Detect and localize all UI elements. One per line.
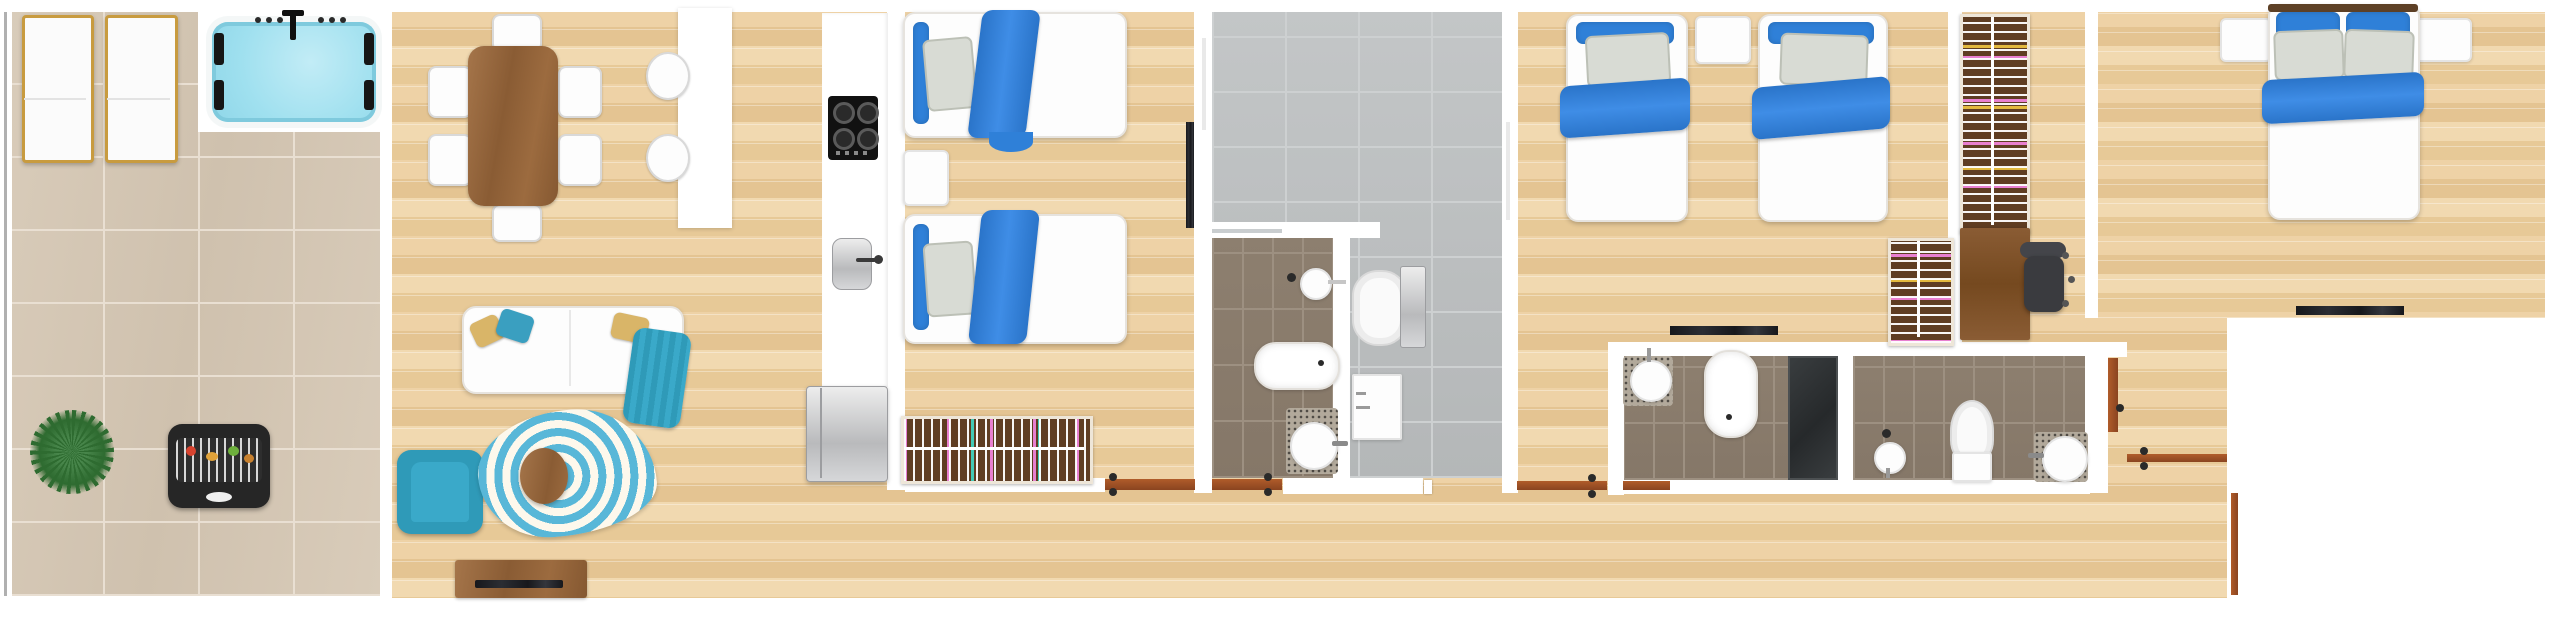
door-hinge [2140, 447, 2148, 455]
hot-tub-jet [266, 17, 272, 23]
door-hinge [1588, 490, 1596, 498]
basin-handle [2028, 453, 2044, 458]
wall-bath-bedroom2 [1502, 5, 1518, 493]
potted-plant [30, 410, 114, 494]
sun-lounger [105, 15, 178, 163]
dining-chair [428, 134, 472, 186]
lounger-seam [107, 98, 170, 100]
bed-single [903, 12, 1127, 138]
terrace-railing [4, 12, 7, 596]
faucet-mixer [1882, 429, 1891, 438]
basin-handle [1332, 441, 1348, 446]
tub-faucet [1318, 360, 1324, 366]
vanity-faucet [1356, 392, 1366, 395]
wardrobe [1888, 238, 1954, 346]
cooktop-knobs [836, 151, 872, 155]
dining-chair [558, 134, 602, 186]
door-threshold [2108, 358, 2118, 432]
double-bed [2268, 4, 2420, 220]
wall-basin [1874, 442, 1906, 474]
wardrobe-rail [1917, 241, 1920, 337]
cooktop-burner [857, 128, 879, 150]
door-stop [1424, 480, 1432, 494]
floor-plan [0, 0, 2560, 622]
hot-tub-headrest [364, 33, 374, 65]
towel-rail [1506, 122, 1510, 220]
door-hinge [1109, 473, 1117, 481]
tub-faucet [1726, 414, 1732, 420]
bed-blanket-fold [989, 132, 1033, 152]
bbq-food [228, 446, 239, 456]
bed-pillow [2273, 29, 2345, 81]
nightstand [903, 150, 949, 206]
basin-faucet-arm [1328, 280, 1346, 284]
nightstand [2220, 18, 2272, 62]
wall-tv [1186, 122, 1194, 228]
ensuite-right-wall [2085, 356, 2108, 493]
fridge-door-split [820, 388, 822, 478]
hot-tub-headrest [214, 80, 224, 110]
bathtub [1704, 350, 1758, 438]
dining-chair [492, 204, 542, 242]
basin-faucet [1647, 348, 1651, 362]
hot-tub-jet [329, 17, 335, 23]
bathtub [1254, 342, 1340, 390]
wall-bedroom2-bottom [1608, 342, 2090, 356]
bbq-shelf [206, 492, 232, 502]
sofa-seam [569, 310, 571, 386]
outer-wall-bottom [0, 598, 2560, 622]
door-hinge [1588, 474, 1596, 482]
chair-caster [2068, 276, 2075, 283]
hot-tub-jet [318, 17, 324, 23]
glass-screen [1212, 229, 1282, 233]
bed-single [1758, 14, 1888, 222]
cooktop-burner [833, 128, 855, 150]
clothes-rack [901, 416, 1093, 484]
bar-stool [646, 52, 690, 100]
ensuite-bottom-wall [1608, 480, 2090, 494]
bbq-food [206, 452, 218, 461]
cooktop-burner [833, 102, 855, 124]
ensuite-left-wall [1608, 355, 1624, 495]
door-threshold [1212, 479, 1282, 490]
door-hinge [1109, 488, 1117, 496]
lounger-seam [24, 98, 86, 100]
wall-tv [2296, 306, 2404, 315]
bed-blanket [1752, 76, 1890, 140]
sun-lounger [22, 15, 94, 163]
side-door-threshold [2231, 493, 2238, 595]
refrigerator [806, 386, 888, 482]
door-hinge [1264, 473, 1272, 481]
dining-chair [558, 66, 602, 118]
headboard [2268, 4, 2418, 12]
vanity-faucet [1356, 406, 1370, 409]
toilet-tank [1400, 266, 1426, 348]
bed-single [903, 214, 1127, 344]
kitchen-sink [832, 238, 872, 290]
door-hinge [2140, 462, 2148, 470]
wardrobe-rail [1991, 17, 1994, 225]
shower [1788, 356, 1838, 480]
bed-blanket [968, 210, 1040, 344]
hot-tub-faucet-stem [290, 12, 296, 40]
door-threshold [1623, 481, 1670, 490]
office-chair [2024, 256, 2064, 312]
outside-bottom-right [2232, 318, 2560, 622]
bbq-food [186, 446, 196, 456]
bbq-food [244, 454, 254, 463]
entry-door-threshold [2127, 454, 2227, 462]
cooktop-burner [857, 102, 879, 124]
dining-table [468, 46, 558, 206]
sink-faucet-head [874, 255, 883, 264]
desk [1960, 228, 2030, 340]
chair-caster [2062, 252, 2069, 259]
dining-chair [428, 66, 472, 118]
bath-bottom-wall [1283, 478, 1423, 494]
chair-caster [2062, 300, 2069, 307]
outside-right [2545, 0, 2560, 622]
wall-dressing-master [2085, 8, 2098, 318]
door-threshold [1105, 479, 1195, 490]
door-hinge [2116, 404, 2124, 412]
kitchen-island [678, 8, 732, 228]
round-basin [1290, 422, 1338, 470]
rack-rail [904, 447, 1084, 450]
tv-bench [455, 560, 587, 598]
bar-stool [646, 134, 690, 182]
round-basin [2042, 436, 2088, 482]
hot-tub-jet [277, 17, 283, 23]
sink-drain [1287, 273, 1296, 282]
bed-blanket [2262, 72, 2424, 124]
door-threshold [1517, 481, 1607, 490]
door-hinge [1264, 488, 1272, 496]
wall-tv [1670, 326, 1778, 335]
bed-blanket [1560, 77, 1690, 138]
bed-pillow [922, 36, 978, 112]
towel-rail [1202, 38, 1206, 130]
hot-tub-headrest [214, 33, 224, 65]
nightstand [1695, 16, 1751, 64]
toilet-tank [1952, 452, 1992, 482]
bed-blanket [967, 10, 1041, 138]
bed-pillow [922, 240, 977, 317]
ensuite-divider-wall [1837, 356, 1853, 480]
sink-faucet [856, 258, 876, 262]
tv [475, 580, 563, 588]
wall-dressing-bottom [2080, 342, 2127, 357]
round-basin [1630, 360, 1672, 402]
open-wardrobe [1960, 14, 2030, 234]
kitchen-counter [822, 13, 888, 387]
nightstand [2414, 18, 2472, 62]
coffee-table [520, 448, 568, 504]
hot-tub-jet [255, 17, 261, 23]
basin-faucet [1886, 468, 1890, 478]
armchair-seat [411, 462, 469, 522]
hot-tub-jet [340, 17, 346, 23]
wall-basin [1300, 268, 1332, 300]
hot-tub-headrest [364, 80, 374, 110]
bed-single [1566, 14, 1688, 222]
